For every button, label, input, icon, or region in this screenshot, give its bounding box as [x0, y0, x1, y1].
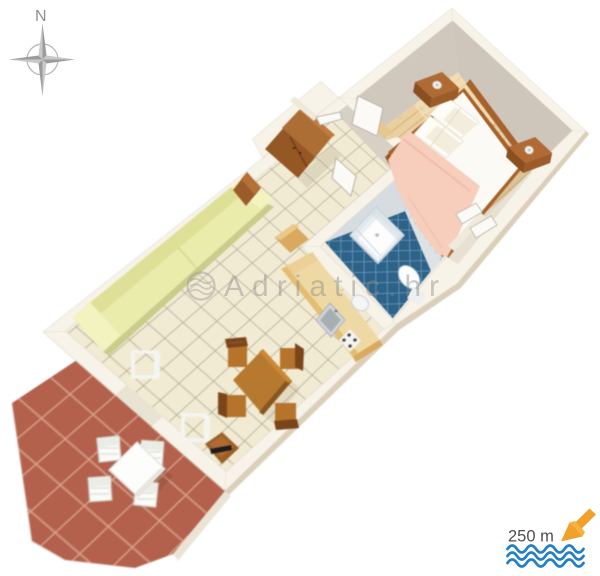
svg-text:Adriatic.hr: Adriatic.hr — [224, 270, 447, 303]
svg-text:250 m: 250 m — [508, 528, 554, 546]
svg-text:N: N — [35, 8, 47, 25]
